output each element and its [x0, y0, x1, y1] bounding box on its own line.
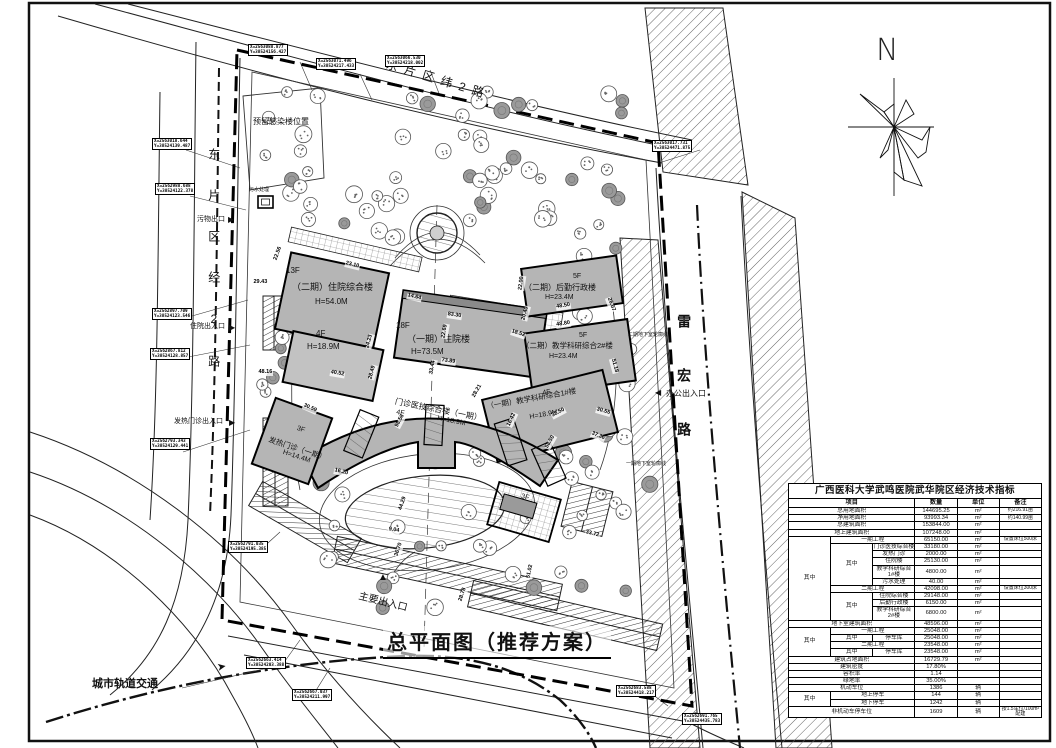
tree-icon: [555, 566, 567, 578]
table-cell: 设置床位500床: [999, 536, 1041, 543]
table-cell: 住院综合楼: [873, 593, 915, 600]
tree-icon: [577, 510, 587, 520]
table-cell: 停车库: [873, 634, 915, 641]
tree-icon: [559, 450, 573, 464]
table-cell: [999, 543, 1041, 550]
tree-icon: [391, 520, 405, 534]
table-cell: 23548.00: [915, 642, 957, 649]
tree-icon: [585, 465, 599, 479]
tree-icon: [395, 129, 411, 145]
table-cell: 35.00%: [915, 678, 957, 685]
tree-icon: [521, 162, 537, 178]
table-cell: 约140.99亩: [999, 515, 1041, 522]
table-cell: [999, 663, 1041, 670]
table-cell: 住院楼: [873, 558, 915, 565]
tree-icon: [474, 137, 489, 152]
table-cell: [999, 642, 1041, 649]
north-arrow: [848, 78, 934, 196]
table-cell: 后勤行政楼: [873, 600, 915, 607]
table-cell: m²: [957, 634, 999, 641]
table-cell: m²: [957, 578, 999, 585]
table-cell: 107248.00: [915, 529, 957, 536]
tree-icon: [275, 330, 289, 344]
table-cell: 25130.00: [915, 558, 957, 565]
tree-icon: [406, 92, 418, 104]
table-cell: [999, 551, 1041, 558]
table-cell: 153844.00: [915, 522, 957, 529]
table-cell: 33180.00: [915, 543, 957, 550]
table-cell: [999, 620, 1041, 627]
tree-icon: [257, 379, 268, 390]
tree-icon: [339, 218, 350, 229]
table-cell: 二期工程: [831, 642, 915, 649]
tree-icon: [506, 150, 521, 165]
tree-icon: [494, 103, 510, 119]
table-cell: m²: [957, 593, 999, 600]
tree-icon: [642, 476, 658, 492]
tree-icon: [320, 551, 336, 567]
tree-icon: [295, 126, 312, 143]
table-cell: 其中: [789, 627, 831, 656]
table-cell: 按1.5车位/100m²配建: [999, 706, 1041, 718]
table-cell: [999, 627, 1041, 634]
table-cell: [957, 678, 999, 685]
tree-icon: [329, 520, 340, 531]
table-cell: [999, 670, 1041, 677]
technical-indicators-table: 广西医科大学武鸣医院武华院区经济技术指标项目数量单位备注总用地面积144695.…: [788, 483, 1042, 718]
tree-icon: [359, 203, 374, 218]
tree-icon: [456, 109, 469, 122]
tree-icon: [616, 504, 631, 519]
tree-icon: [427, 599, 444, 616]
table-cell: 其中: [831, 543, 873, 585]
tree-icon: [385, 230, 400, 245]
tree-icon: [617, 429, 633, 445]
tree-icon: [601, 86, 617, 102]
tree-icon: [377, 579, 392, 594]
drawing-canvas: 东片区纬2路东片区经2路雷宏路城市轨道交通13F（二期）住院综合楼H=54.0M…: [0, 0, 1056, 748]
building-3f-phase2: [487, 482, 561, 542]
table-cell: [999, 529, 1041, 536]
table-cell: 教学科研综合1#楼: [873, 565, 915, 578]
table-cell: m²: [957, 558, 999, 565]
tree-icon: [293, 180, 307, 194]
table-cell: m²: [957, 522, 999, 529]
tree-icon: [471, 93, 487, 109]
table-cell: [999, 607, 1041, 620]
table-cell: m²: [957, 600, 999, 607]
table-cell: [999, 558, 1041, 565]
table-cell: 48596.00: [915, 620, 957, 627]
table-cell: m²: [957, 565, 999, 578]
table-cell: 1386: [915, 685, 957, 692]
table-cell: 其中: [789, 692, 831, 706]
tree-icon: [527, 100, 538, 111]
tree-icon: [260, 150, 271, 161]
tree-icon: [535, 211, 552, 228]
table-cell: 65150.00: [915, 536, 957, 543]
table-cell: [999, 692, 1041, 699]
tree-icon: [601, 164, 612, 175]
tree-icon: [473, 173, 487, 187]
table-cell: 144: [915, 692, 957, 699]
table-cell: 教学科研综合2#楼: [873, 607, 915, 620]
table-cell: [957, 663, 999, 670]
tree-icon: [620, 585, 631, 596]
table-cell: 绿地率: [789, 678, 915, 685]
table-cell: 地上建筑面积: [789, 529, 915, 536]
table-cell: 93993.34: [915, 515, 957, 522]
table-cell: [999, 656, 1041, 663]
tree-icon: [616, 107, 628, 119]
tree-icon: [414, 541, 424, 551]
table-cell: 设置床位300床: [999, 585, 1041, 592]
table-cell: [999, 678, 1041, 685]
table-cell: 建筑密度: [789, 663, 915, 670]
table-cell: 广西医科大学武鸣医院武华院区经济技术指标: [789, 484, 1042, 499]
tree-icon: [461, 504, 476, 519]
tree-icon: [526, 580, 542, 596]
table-cell: m²: [957, 607, 999, 620]
table-cell: [999, 685, 1041, 692]
table-cell: 1.14: [915, 670, 957, 677]
tree-icon: [262, 111, 274, 123]
table-cell: 单位: [957, 499, 999, 508]
tree-icon: [463, 214, 476, 227]
table-cell: 17.80%: [915, 663, 957, 670]
table-cell: 29148.00: [915, 593, 957, 600]
table-cell: m²: [957, 627, 999, 634]
table-cell: 其中: [831, 593, 873, 621]
tree-icon: [616, 95, 629, 108]
tree-icon: [282, 87, 293, 98]
table-cell: 其中: [831, 634, 873, 641]
table-cell: 144695.25: [915, 508, 957, 515]
tree-icon: [512, 97, 526, 111]
tree-icon: [335, 487, 350, 502]
tree-icon: [575, 579, 588, 592]
table-cell: m²: [957, 536, 999, 543]
table-cell: [999, 578, 1041, 585]
tree-icon: [346, 186, 363, 203]
building-sewage-treatment: [258, 196, 273, 208]
table-cell: 门诊医技综合楼: [873, 543, 915, 550]
table-cell: [999, 699, 1041, 706]
tree-icon: [581, 157, 594, 170]
tree-icon: [473, 539, 486, 552]
table-cell: [999, 649, 1041, 656]
tree-icon: [577, 308, 592, 323]
table-cell: 16729.79: [915, 656, 957, 663]
tree-icon: [485, 166, 499, 180]
table-cell: 建筑占地面积: [789, 656, 915, 663]
tree-icon: [301, 212, 315, 226]
table-cell: m²: [957, 529, 999, 536]
tree-icon: [500, 163, 512, 175]
table-cell: 42098.00: [915, 585, 957, 592]
table-cell: 机动车位: [789, 685, 915, 692]
table-cell: 23548.00: [915, 649, 957, 656]
table-cell: 辆: [957, 685, 999, 692]
tree-icon: [310, 89, 325, 104]
table-cell: 其中: [831, 649, 873, 656]
table-cell: 地下室建筑面积: [789, 620, 915, 627]
table-cell: 25048.00: [915, 634, 957, 641]
table-cell: 6150.00: [915, 600, 957, 607]
tree-icon: [596, 490, 606, 500]
table-cell: 污水处理: [873, 578, 915, 585]
table-cell: 其中: [789, 536, 831, 620]
table-cell: 25048.00: [915, 627, 957, 634]
table-cell: 一期工程: [831, 536, 915, 543]
table-cell: m²: [957, 620, 999, 627]
table-cell: m²: [957, 508, 999, 515]
tree-icon: [303, 167, 313, 177]
building-logistics-admin: [521, 256, 623, 317]
table-cell: 净用地面积: [789, 515, 915, 522]
tree-icon: [372, 191, 383, 202]
table-cell: 1242: [915, 699, 957, 706]
table-cell: [957, 670, 999, 677]
table-cell: 总用地面积: [789, 508, 915, 515]
table-cell: 辆: [957, 699, 999, 706]
table-cell: m²: [957, 585, 999, 592]
table-cell: 发热门诊: [873, 551, 915, 558]
table-cell: 容积率: [789, 670, 915, 677]
tree-icon: [436, 541, 446, 551]
north-label: N: [876, 33, 898, 68]
tree-icon: [393, 188, 408, 203]
table-cell: 40.00: [915, 578, 957, 585]
tree-icon: [390, 172, 402, 184]
tree-icon: [575, 228, 586, 239]
table-cell: 2000.00: [915, 551, 957, 558]
table-cell: m²: [957, 656, 999, 663]
table-cell: 6800.00: [915, 607, 957, 620]
table-cell: 非机动车停车位: [789, 706, 915, 718]
tree-icon: [565, 472, 579, 486]
table-cell: 辆: [957, 692, 999, 699]
tree-icon: [536, 174, 546, 184]
tree-icon: [376, 601, 389, 614]
table-cell: [999, 522, 1041, 529]
table-cell: 一期工程: [831, 627, 915, 634]
tree-icon: [602, 183, 617, 198]
table-cell: [999, 593, 1041, 600]
tree-icon: [563, 525, 577, 539]
table-cell: [999, 634, 1041, 641]
table-cell: 二期工程: [831, 585, 915, 592]
tree-icon: [436, 143, 452, 159]
tree-icon: [458, 129, 469, 140]
tree-icon: [505, 566, 521, 582]
table-cell: [999, 565, 1041, 578]
table-cell: 地下停车: [831, 699, 915, 706]
tree-icon: [566, 173, 578, 185]
tree-icon: [304, 197, 318, 211]
table-cell: 总建筑面积: [789, 522, 915, 529]
table-cell: m²: [957, 551, 999, 558]
tree-icon: [420, 96, 435, 111]
tree-icon: [294, 145, 306, 157]
table-cell: [999, 600, 1041, 607]
table-cell: m²: [957, 649, 999, 656]
table-cell: 约216.91亩: [999, 508, 1041, 515]
table-cell: 数量: [915, 499, 957, 508]
table-cell: 项目: [789, 499, 915, 508]
table-cell: 4800.00: [915, 565, 957, 578]
table-cell: 停车库: [873, 649, 915, 656]
tree-icon: [610, 242, 622, 254]
table-cell: m²: [957, 515, 999, 522]
tree-icon: [594, 220, 604, 230]
drawing-title: 总平面图（推荐方案）: [383, 626, 611, 659]
table-cell: m²: [957, 642, 999, 649]
table-cell: m²: [957, 543, 999, 550]
table-cell: 辆: [957, 706, 999, 718]
table-cell: 1609: [915, 706, 957, 718]
table-cell: 地上停车: [831, 692, 915, 699]
table-cell: 备注: [999, 499, 1041, 508]
tree-icon: [475, 197, 486, 208]
tree-icon: [267, 371, 280, 384]
